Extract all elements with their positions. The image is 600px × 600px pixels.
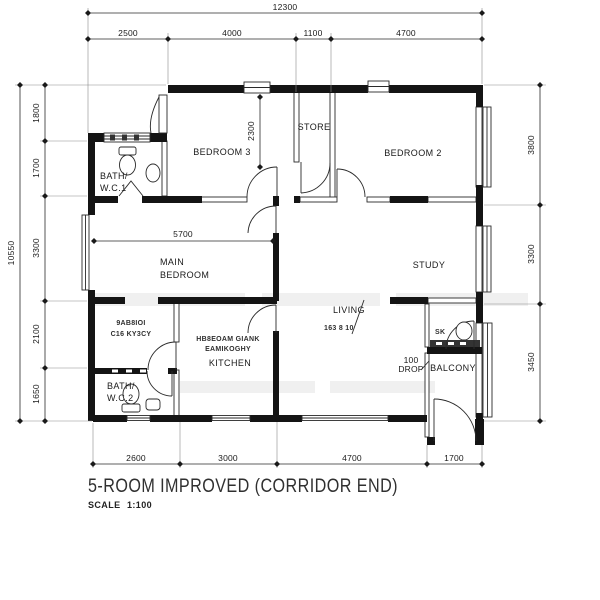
- balcony-basin: [456, 322, 472, 340]
- main-bedroom-door-arc: [248, 206, 276, 233]
- balcony-watermark: SK: [435, 329, 445, 336]
- dim-bottom-1: 2600: [126, 453, 146, 463]
- dim-top-2: 4000: [222, 28, 242, 38]
- dim-hall-depth: 2300: [246, 121, 256, 141]
- floor-plan-drawing: 12300 2500 4000 1100 4700 10550 1800 170…: [0, 0, 600, 600]
- dim-top-4: 4700: [396, 28, 416, 38]
- dim-top-1: 2500: [118, 28, 138, 38]
- label-study: STUDY: [413, 260, 446, 270]
- title-block: 5-ROOM IMPROVED (CORRIDOR END) SCALE 1:1…: [88, 476, 398, 510]
- label-bath-wc2-1: BATH/: [107, 381, 135, 391]
- dim-top-total: 12300: [273, 2, 298, 12]
- dimension-ticks: [17, 10, 543, 467]
- label-bedroom2: BEDROOM 2: [384, 148, 442, 158]
- room-labels: BEDROOM 3 STORE BEDROOM 2 BATH/ W.C.1 MA…: [100, 122, 476, 403]
- label-main-bedroom-1: MAIN: [160, 257, 184, 267]
- label-bedroom3: BEDROOM 3: [193, 147, 251, 157]
- dim-bottom-4: 1700: [444, 453, 464, 463]
- scale-label: SCALE: [88, 500, 121, 510]
- service-room-door-arc: [148, 342, 176, 370]
- dim-main-bedroom-width: 5700: [173, 229, 193, 239]
- floor-plan-page: 12300 2500 4000 1100 4700 10550 1800 170…: [0, 0, 600, 600]
- dim-top-3: 1100: [303, 28, 322, 38]
- balcony-entrance-door-arc: [434, 399, 476, 441]
- dim-left-5: 1650: [31, 384, 41, 404]
- dim-left-4: 2100: [31, 324, 41, 344]
- service-watermark-2: C16 KY3CY: [111, 331, 152, 338]
- dim-left-3: 3300: [31, 238, 41, 258]
- label-living-garbled-watermark: 163 8 10: [324, 325, 354, 332]
- bath-wc2-door-arc: [147, 371, 172, 396]
- entrance-door-leaf: [159, 95, 167, 133]
- kitchen-watermark-2: EAMIKOGHY: [205, 346, 251, 353]
- dim-bottom-2: 3000: [218, 453, 238, 463]
- dim-bottom-3: 4700: [342, 453, 362, 463]
- scale-value: 1:100: [127, 500, 152, 510]
- dimension-lines: [20, 13, 540, 464]
- wc2-toilet-tank: [122, 404, 140, 412]
- plan-title: 5-ROOM IMPROVED (CORRIDOR END): [88, 476, 398, 497]
- wc1-sink: [146, 164, 160, 182]
- wc1-toilet-tank: [119, 147, 136, 155]
- label-bath-wc1-1: BATH/: [100, 171, 128, 181]
- label-drop-2: DROP: [398, 364, 423, 374]
- bedroom3-door-arc: [247, 167, 277, 197]
- label-kitchen: KITCHEN: [209, 358, 251, 368]
- label-bath-wc1-2: W.C.1: [100, 183, 127, 193]
- label-store: STORE: [298, 122, 331, 132]
- dim-right-1: 3800: [526, 135, 536, 155]
- bedroom2-door-arc: [337, 169, 365, 197]
- kitchen-door-arc: [248, 305, 276, 333]
- store-door-arc: [301, 163, 330, 193]
- service-watermark-1: 9AB8IOI: [116, 320, 145, 327]
- entrance-door-arc: [150, 97, 159, 133]
- dim-left-1: 1800: [31, 103, 41, 123]
- wc2-sink: [146, 399, 160, 410]
- label-bath-wc2-2: W.C.2: [107, 393, 134, 403]
- kitchen-watermark-1: HB8EOAM GIANK: [196, 336, 259, 343]
- dim-left-total: 10550: [6, 241, 16, 266]
- dim-left-2: 1700: [31, 158, 41, 178]
- dim-right-3: 3450: [526, 352, 536, 372]
- label-balcony: BALCONY: [430, 363, 476, 373]
- label-main-bedroom-2: BEDROOM: [160, 270, 209, 280]
- dim-right-2: 3300: [526, 244, 536, 264]
